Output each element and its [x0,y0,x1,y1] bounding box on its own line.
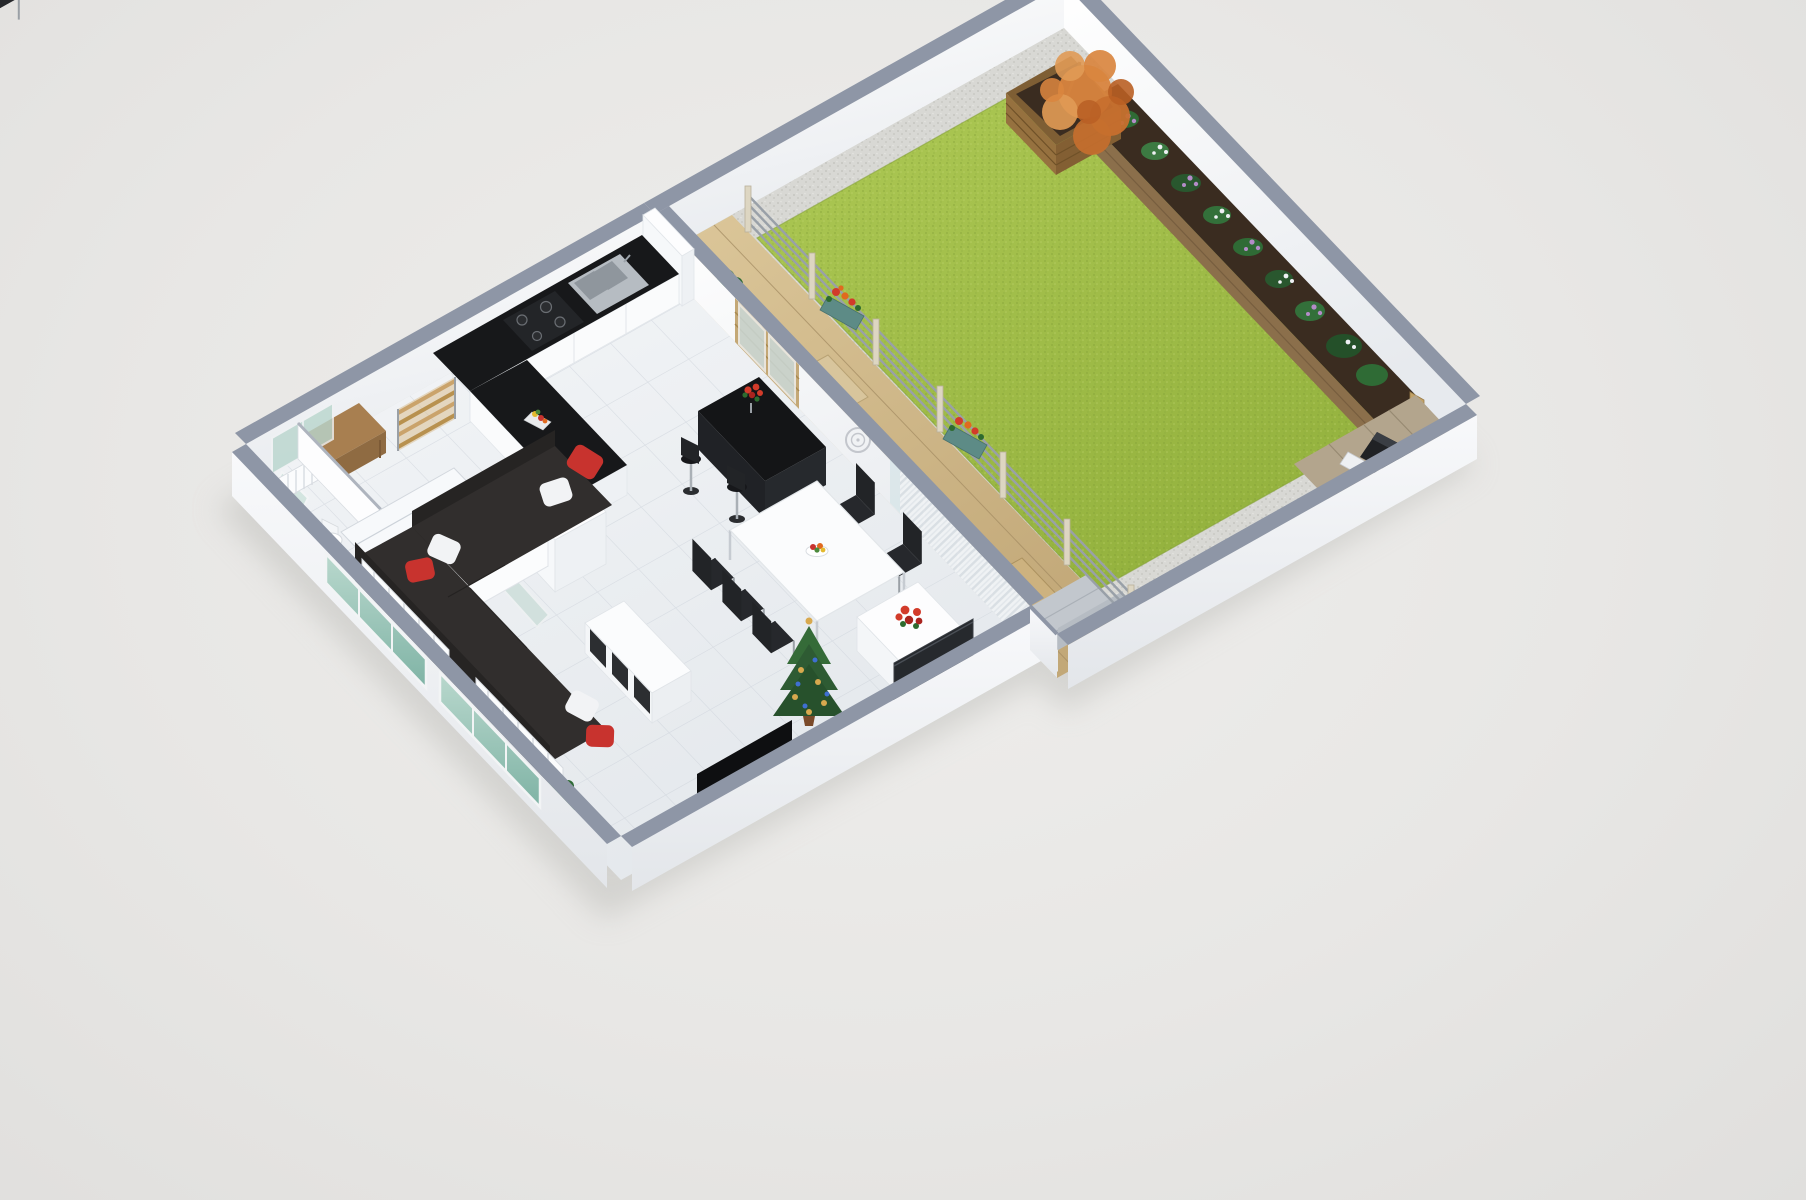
dining-chair-facing-sw [0,0,19,32]
render-canvas [0,0,1806,1200]
floor-plan-render [0,0,1806,1200]
